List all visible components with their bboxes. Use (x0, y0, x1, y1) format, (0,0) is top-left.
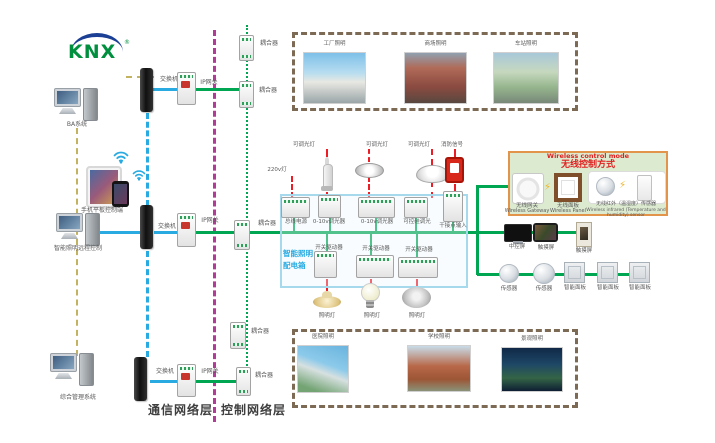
dish-lamp-icon (402, 287, 431, 308)
load-wire (431, 149, 433, 165)
ethernet-switch-icon (140, 205, 153, 249)
bus-power-supply-icon (281, 197, 310, 218)
dimmable-lamp-label: 可调光灯 (404, 142, 434, 148)
ethernet-line (146, 113, 149, 206)
landscape-lighting-label: 景观照明 (501, 336, 563, 342)
smart-panel-label: 智能面板 (591, 285, 625, 291)
mall-lighting-label: 商场照明 (404, 41, 467, 47)
load-wire (454, 149, 456, 157)
ip-gateway-label: IP网关 (196, 80, 222, 87)
sensor-icon (499, 264, 519, 283)
panel-title-line2: 配电箱 (283, 260, 313, 272)
lightning-icon: ⚡ (544, 183, 551, 193)
dimmable-lamp-label: 可调光灯 (289, 142, 319, 148)
wifi-icon (112, 149, 130, 164)
central-control-screen-icon (504, 224, 532, 242)
load-wire (326, 149, 328, 157)
station-photo (493, 52, 559, 104)
switch-actuator-label: 开关驱动器 (398, 247, 440, 253)
bulb-lamp-icon (361, 283, 379, 310)
knx-bus-line (477, 185, 512, 188)
coupler-label: 耦合器 (248, 329, 272, 336)
knx-backbone-line (246, 25, 248, 370)
line-coupler-icon (234, 220, 250, 250)
dimmer-0-10v-icon (358, 197, 395, 218)
humidity-sensor-icon (637, 175, 652, 201)
ethernet-switch-icon (140, 68, 153, 112)
smartphone-icon (112, 181, 129, 207)
communication-layer-label: 通信网络层 (148, 401, 213, 418)
dry-contact-input-label: 干接点输入 (433, 223, 473, 229)
mall-photo (404, 52, 467, 104)
panel-title: 智能照明 配电箱 (283, 248, 313, 272)
school-lighting-label: 学校照明 (407, 334, 471, 340)
smart-panel-label: 智能面板 (623, 285, 657, 291)
smart-panel-icon (597, 262, 618, 283)
line-coupler-icon (230, 322, 246, 349)
knx-logo: KNX ® (68, 33, 128, 67)
ethernet-line (146, 251, 149, 357)
wireless-sensor-group: ⚡ (588, 171, 666, 204)
ethernet-line (98, 231, 146, 234)
wireless-title-cn: 无线控制方式 (508, 160, 668, 170)
sensor-icon (533, 263, 555, 284)
knx-bus-line (194, 380, 242, 383)
dimmer-0-10v-label: 0-10v调光器 (352, 219, 402, 225)
monitor-icon (50, 353, 77, 372)
switch-actuator-icon (356, 255, 394, 278)
hospital-lighting-label: 医院照明 (297, 334, 349, 340)
station-lighting-label: 车站照明 (493, 41, 559, 47)
220v-lamp-label: 220v灯 (263, 167, 291, 173)
smart-panel-icon (564, 262, 585, 283)
fire-signal-label: 消防信号 (437, 142, 467, 148)
coupler-label: 耦合器 (257, 41, 281, 48)
lighting-lamp-label: 照明灯 (357, 313, 387, 319)
switch-label: 交换机 (155, 224, 179, 231)
school-photo (407, 345, 471, 392)
smart-panel-label: 智能面板 (558, 285, 592, 291)
landscape-photo (501, 347, 563, 392)
knx-logo-text: KNX (68, 41, 116, 63)
ethernet-line (150, 380, 179, 383)
knx-lighting-diagram: KNX ® BA系统 手机平板控制端 智能照明远程控制 综合管理系统 交换机 I… (0, 0, 715, 443)
wireless-sensor-label-cn: 无线红外（温湿度）传感器 (586, 202, 666, 208)
ceiling-lamp-icon (313, 296, 341, 308)
pc-tower-icon (85, 213, 100, 246)
coupler-label: 耦合器 (256, 88, 280, 95)
knx-bus-line (476, 185, 479, 275)
monitor-icon (54, 88, 81, 107)
ip-gateway-icon (177, 213, 196, 247)
pc-tower-icon (79, 353, 94, 386)
touchscreen-icon (576, 222, 592, 247)
wireless-infrared-sensor-icon (596, 177, 615, 196)
wireless-gateway-icon (512, 173, 544, 204)
downlight-icon (355, 163, 384, 178)
line-coupler-icon (236, 367, 251, 396)
factory-lighting-label: 工厂照明 (303, 41, 366, 47)
hospital-photo (297, 345, 349, 393)
control-layer-label: 控制网络层 (221, 401, 286, 418)
switch-label: 交换机 (153, 369, 177, 376)
dry-contact-input-icon (443, 191, 463, 222)
coupler-label: 耦合器 (252, 373, 276, 380)
knx-logo-reg: ® (124, 39, 130, 46)
touchscreen-label: 触摸屏 (530, 245, 562, 251)
lighting-lamp-label: 照明灯 (402, 313, 432, 319)
thyristor-dimmer-label: 可控硅调光 (398, 219, 436, 225)
dimmer-0-10v-label: 0-10v调光器 (303, 219, 355, 225)
ip-gateway-label: IP网关 (197, 369, 223, 376)
ethernet-switch-icon (134, 357, 147, 401)
switch-actuator-icon (314, 251, 337, 278)
wifi-icon (131, 168, 147, 181)
sensor-label: 传感器 (492, 286, 526, 292)
computer-icon (50, 353, 96, 390)
switch-actuator-icon (398, 257, 438, 278)
fire-alarm-icon (445, 157, 464, 183)
computer-icon (54, 88, 100, 125)
monitor-icon (56, 213, 83, 232)
knx-bus-line (194, 88, 244, 91)
lightning-icon: ⚡ (619, 181, 626, 191)
load-wire (368, 149, 370, 162)
remote-control-label: 智能照明远程控制 (28, 246, 128, 253)
candle-lamp-icon (321, 157, 333, 193)
dimmable-lamp-label: 可调光灯 (362, 142, 392, 148)
ip-gateway-icon (177, 364, 196, 397)
smart-panel-icon (629, 262, 650, 283)
sensor-label: 传感器 (527, 286, 561, 292)
touchscreen-icon (533, 223, 558, 242)
touchscreen-label: 触摸屏 (568, 248, 600, 254)
wireless-sensor-label-en: Wireless infrared (Temperature and humid… (584, 208, 668, 218)
line-coupler-icon (239, 35, 254, 61)
lighting-lamp-label: 照明灯 (312, 313, 342, 319)
management-system-label: 综合管理系统 (36, 395, 120, 402)
pc-tower-icon (83, 88, 98, 121)
switch-actuator-label: 开关驱动器 (355, 246, 397, 252)
dimmer-0-10v-icon (318, 195, 341, 218)
ba-system-label: BA系统 (44, 122, 110, 129)
ip-gateway-icon (177, 72, 196, 105)
ip-gateway-label: IP网关 (197, 218, 223, 225)
factory-photo (303, 52, 366, 104)
line-coupler-icon (239, 81, 254, 108)
thyristor-dimmer-icon (404, 197, 428, 218)
wireless-panel-icon (554, 173, 582, 202)
central-screen-label: 中控屏 (501, 244, 533, 250)
